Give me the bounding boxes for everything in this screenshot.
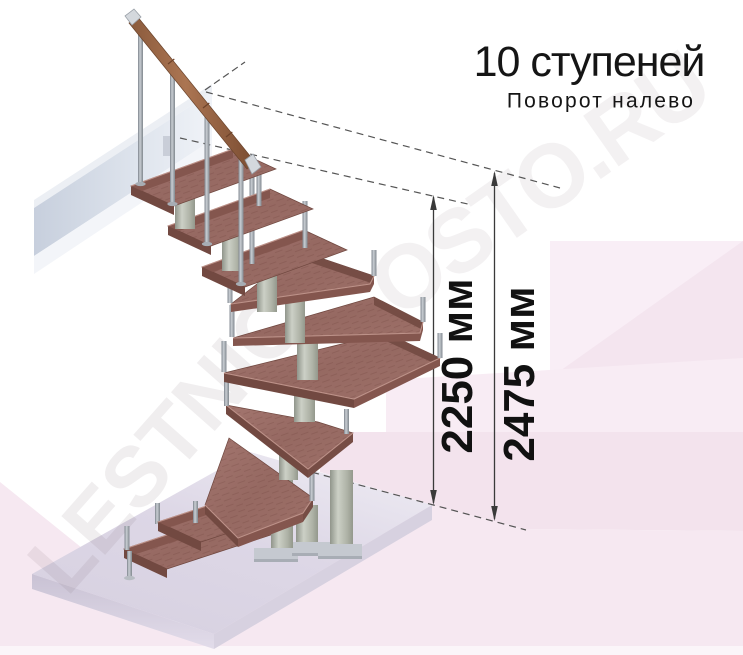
svg-text:2475 мм: 2475 мм [495, 286, 544, 461]
svg-text:2250 мм: 2250 мм [433, 278, 482, 453]
svg-text:10 ступеней: 10 ступеней [474, 38, 705, 86]
svg-text:Поворот налево: Поворот налево [507, 90, 695, 113]
